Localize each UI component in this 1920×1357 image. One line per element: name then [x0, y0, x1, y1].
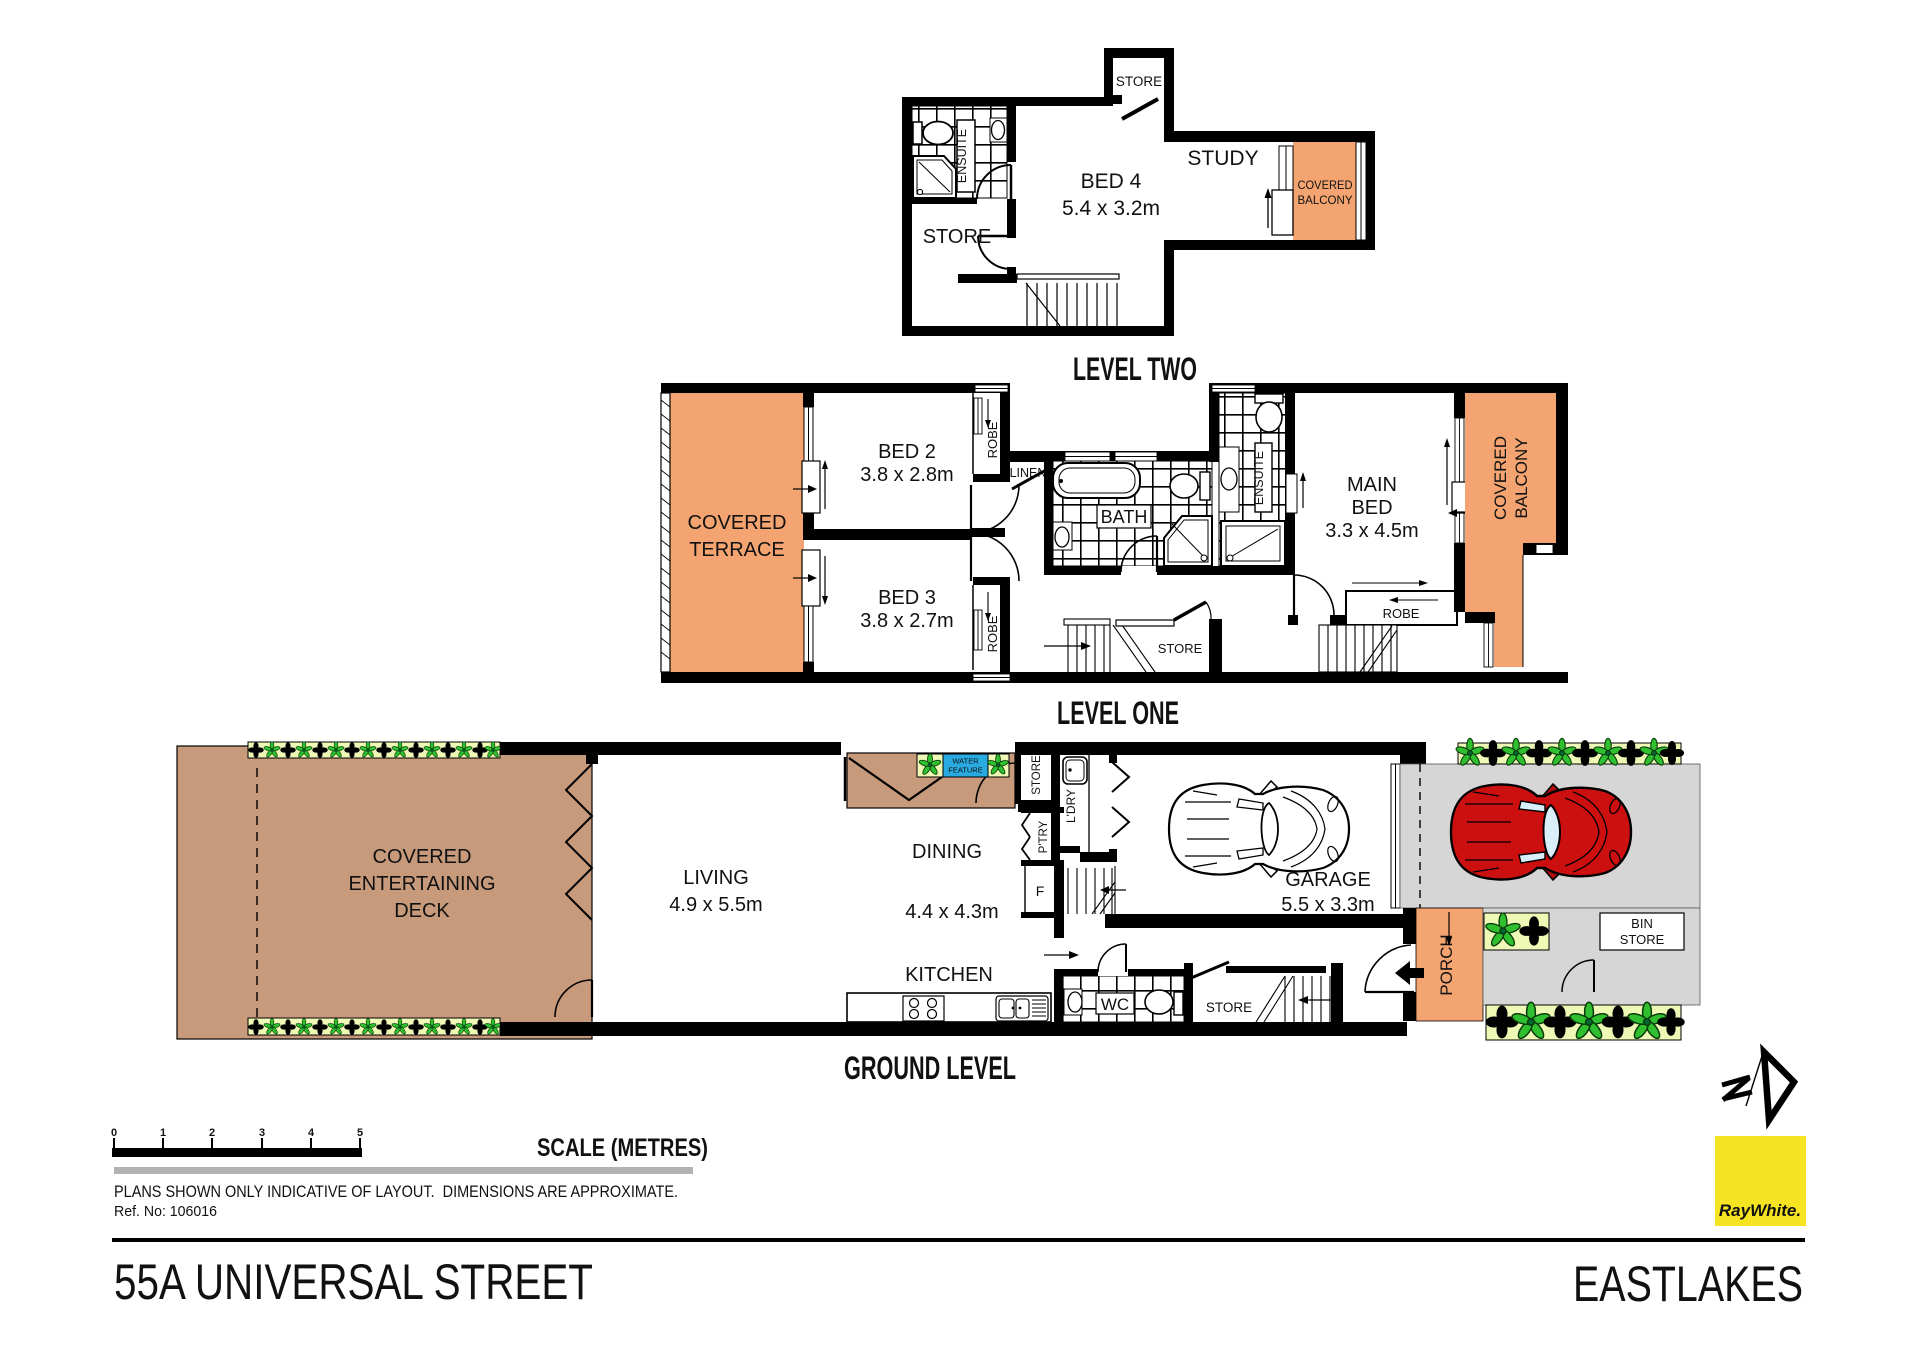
svg-text:STORE: STORE: [1158, 641, 1203, 656]
svg-text:WC: WC: [1101, 995, 1129, 1014]
svg-text:BIN: BIN: [1631, 916, 1653, 931]
svg-text:BALCONY: BALCONY: [1298, 195, 1353, 207]
svg-text:BALCONY: BALCONY: [1512, 437, 1531, 518]
svg-text:GROUND LEVEL: GROUND LEVEL: [844, 1050, 1016, 1086]
svg-text:5.5 x 3.3m: 5.5 x 3.3m: [1281, 894, 1374, 916]
svg-text:P'TRY: P'TRY: [1038, 820, 1050, 853]
svg-text:BATH: BATH: [1101, 507, 1148, 527]
svg-text:COVERED: COVERED: [688, 512, 787, 534]
svg-text:MAIN: MAIN: [1347, 474, 1397, 496]
svg-text:STORE: STORE: [1206, 1000, 1252, 1015]
svg-text:4.4 x 4.3m: 4.4 x 4.3m: [905, 901, 998, 923]
svg-text:COVERED: COVERED: [1298, 180, 1353, 192]
svg-text:DINING: DINING: [912, 841, 982, 863]
svg-text:ENSUITE: ENSUITE: [1252, 451, 1266, 505]
svg-text:KITCHEN: KITCHEN: [905, 964, 993, 986]
svg-text:2: 2: [209, 1127, 215, 1139]
svg-text:COVERED: COVERED: [373, 846, 472, 868]
svg-text:PLANS SHOWN ONLY INDICATIVE OF: PLANS SHOWN ONLY INDICATIVE OF LAYOUT. D…: [114, 1183, 678, 1201]
svg-text:4: 4: [308, 1127, 315, 1139]
svg-text:ROBE: ROBE: [985, 421, 1000, 458]
svg-text:RayWhite.: RayWhite.: [1719, 1201, 1801, 1220]
svg-text:STUDY: STUDY: [1187, 147, 1258, 170]
svg-text:SCALE (METRES): SCALE (METRES): [537, 1134, 708, 1162]
svg-text:55A UNIVERSAL STREET: 55A UNIVERSAL STREET: [114, 1254, 593, 1310]
svg-text:BED 2: BED 2: [878, 441, 936, 463]
svg-text:LEVEL ONE: LEVEL ONE: [1057, 695, 1179, 731]
svg-text:BED: BED: [1351, 497, 1392, 519]
svg-text:LIVING: LIVING: [683, 867, 749, 889]
svg-text:WATER: WATER: [952, 757, 979, 766]
svg-text:5.4 x 3.2m: 5.4 x 3.2m: [1062, 197, 1160, 220]
svg-text:LEVEL TWO: LEVEL TWO: [1073, 351, 1197, 387]
svg-text:STORE: STORE: [1031, 755, 1043, 795]
svg-text:3.8 x 2.8m: 3.8 x 2.8m: [860, 464, 953, 486]
svg-text:EASTLAKES: EASTLAKES: [1573, 1256, 1803, 1312]
svg-text:1: 1: [160, 1127, 166, 1139]
svg-text:ROBE: ROBE: [985, 615, 1000, 652]
svg-text:GARAGE: GARAGE: [1285, 869, 1371, 891]
svg-text:COVERED: COVERED: [1491, 436, 1510, 520]
svg-text:STORE: STORE: [1620, 932, 1665, 947]
svg-text:3.3 x 4.5m: 3.3 x 4.5m: [1325, 520, 1418, 542]
svg-text:Ref. No: 106016: Ref. No: 106016: [114, 1203, 217, 1220]
svg-text:ROBE: ROBE: [1383, 606, 1420, 621]
svg-text:F: F: [1036, 883, 1045, 899]
svg-text:BED 4: BED 4: [1081, 170, 1142, 193]
svg-text:5: 5: [357, 1127, 363, 1139]
svg-text:ENSUITE: ENSUITE: [955, 129, 969, 183]
svg-text:4.9 x 5.5m: 4.9 x 5.5m: [669, 894, 762, 916]
svg-text:3.8 x 2.7m: 3.8 x 2.7m: [860, 610, 953, 632]
svg-text:PORCH: PORCH: [1437, 934, 1456, 995]
svg-text:STORE: STORE: [923, 226, 992, 248]
svg-text:3: 3: [259, 1127, 265, 1139]
svg-text:ENTERTAINING: ENTERTAINING: [348, 873, 495, 895]
svg-text:0: 0: [111, 1127, 117, 1139]
svg-text:DECK: DECK: [394, 900, 450, 922]
svg-text:BED 3: BED 3: [878, 587, 936, 609]
svg-text:STORE: STORE: [1116, 74, 1162, 89]
svg-text:TERRACE: TERRACE: [689, 539, 785, 561]
svg-text:FEATURE: FEATURE: [948, 766, 982, 775]
svg-text:L'DRY: L'DRY: [1064, 789, 1078, 823]
